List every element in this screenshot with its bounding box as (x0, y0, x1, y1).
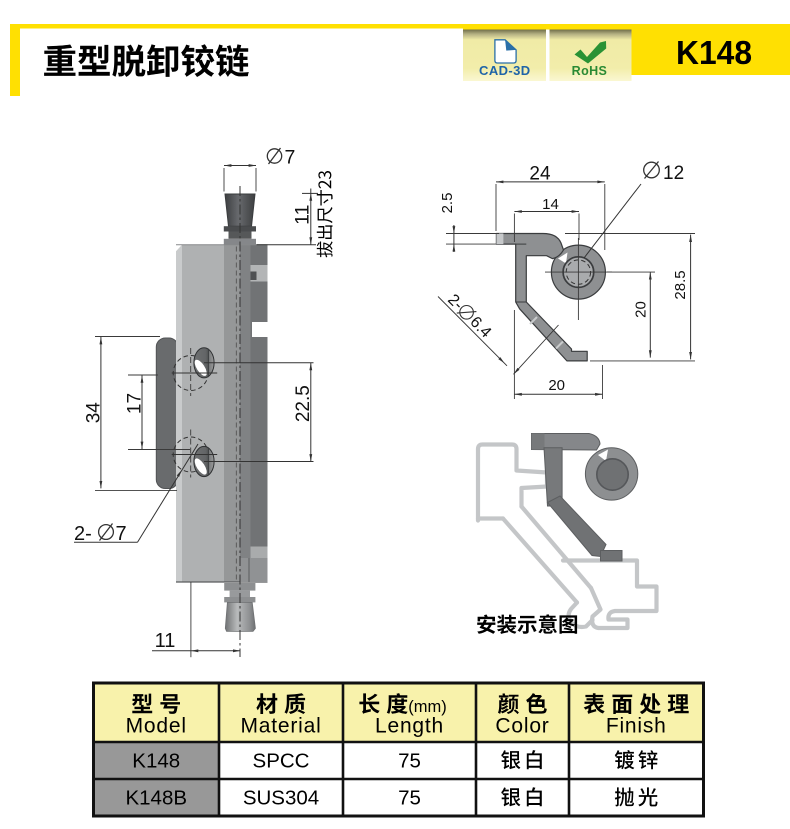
svg-text:12: 12 (663, 163, 684, 184)
svg-text:11: 11 (291, 205, 313, 225)
svg-text:22.5: 22.5 (293, 385, 314, 422)
svg-text:17: 17 (124, 393, 145, 414)
svg-text:20: 20 (548, 377, 565, 394)
svg-text:SUS304: SUS304 (243, 787, 319, 810)
svg-text:24: 24 (529, 164, 551, 185)
svg-text:Finish: Finish (606, 715, 667, 738)
svg-text:28.5: 28.5 (672, 270, 689, 299)
svg-text:Length: Length (375, 715, 444, 738)
svg-text:K148: K148 (132, 750, 180, 773)
svg-text:K148B: K148B (125, 787, 187, 810)
svg-text:75: 75 (398, 787, 421, 810)
svg-text:(mm): (mm) (408, 698, 446, 716)
svg-text:RoHS: RoHS (572, 64, 608, 78)
svg-text:Model: Model (126, 715, 187, 738)
svg-text:2.5: 2.5 (439, 193, 456, 214)
svg-text:34: 34 (84, 402, 105, 424)
svg-text:11: 11 (155, 630, 176, 652)
svg-text:Material: Material (240, 715, 321, 738)
svg-text:75: 75 (398, 750, 421, 773)
svg-text:20: 20 (633, 301, 650, 318)
svg-text:Color: Color (495, 715, 549, 738)
svg-text:14: 14 (542, 196, 559, 213)
svg-text:SPCC: SPCC (253, 750, 310, 773)
svg-text:CAD-3D: CAD-3D (479, 63, 531, 78)
svg-text:7: 7 (285, 147, 296, 169)
svg-text:K148: K148 (676, 35, 752, 72)
